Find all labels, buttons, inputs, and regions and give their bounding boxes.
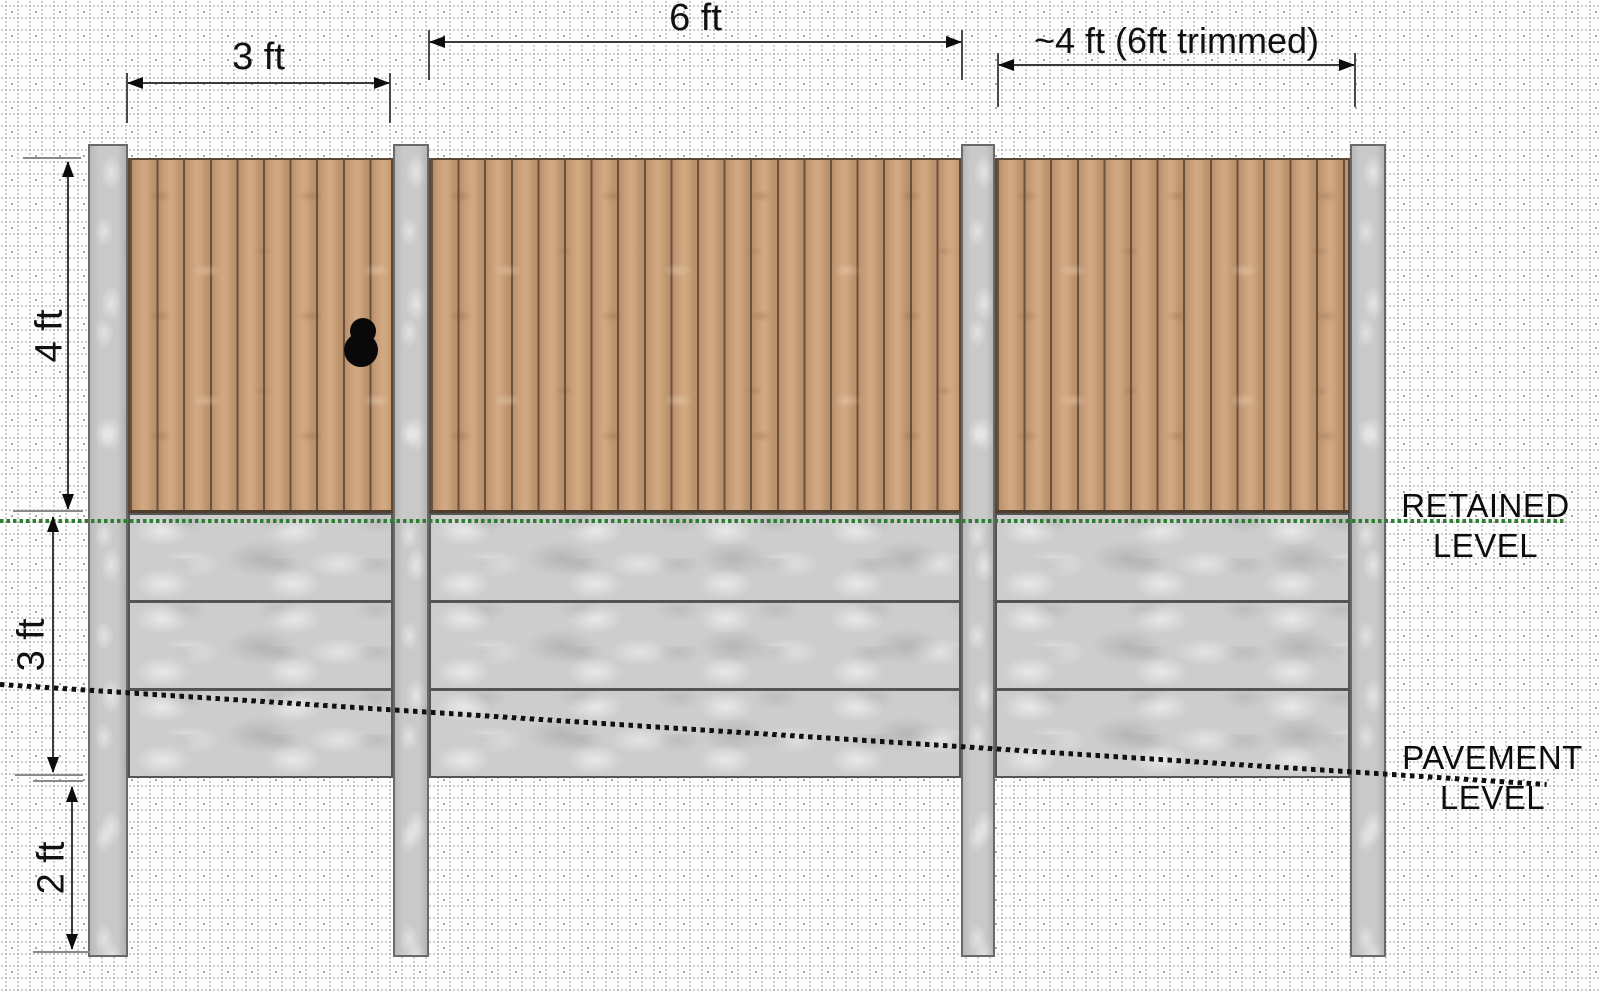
concrete-post <box>393 144 429 957</box>
dimension-line <box>127 82 390 84</box>
concrete-post <box>88 144 128 957</box>
arrow-up-icon <box>47 516 59 532</box>
dimension-label: 3 ft <box>11 618 54 671</box>
arrow-left-icon <box>429 36 445 48</box>
fence-panel <box>995 158 1350 513</box>
pavement-level-label-line1: PAVEMENT <box>1385 738 1600 778</box>
dimension-label: 4 ft <box>29 309 72 362</box>
gravel-board <box>429 689 961 778</box>
gravel-board <box>995 601 1350 690</box>
retained-level-label-line1: RETAINED <box>1378 486 1593 526</box>
extension-line <box>15 774 83 776</box>
knot-hole-mark <box>344 318 378 366</box>
pavement-level-label: PAVEMENT LEVEL <box>1385 738 1600 818</box>
gravel-board <box>995 513 1350 602</box>
retained-level-line <box>0 519 1566 523</box>
extension-line <box>33 780 83 782</box>
gravel-board <box>429 601 961 690</box>
arrow-down-icon <box>62 494 74 510</box>
pavement-level-label-line2: LEVEL <box>1385 778 1600 818</box>
retained-level-label: RETAINED LEVEL <box>1378 486 1593 566</box>
arrow-left-icon <box>998 59 1014 71</box>
arrow-right-icon <box>374 77 390 89</box>
arrow-up-icon <box>62 161 74 177</box>
gravel-board <box>128 601 393 690</box>
gravel-board <box>995 689 1350 778</box>
dimension-label: 6 ft <box>669 0 722 40</box>
gravel-board-stack <box>995 513 1350 778</box>
gravel-board-stack <box>128 513 393 778</box>
dimension-label: 3 ft <box>232 36 285 79</box>
arrow-left-icon <box>127 77 143 89</box>
dimension-label: ~4 ft (6ft trimmed) <box>1034 20 1319 62</box>
gravel-board <box>429 513 961 602</box>
fence-panel <box>429 158 961 513</box>
extension-line <box>23 157 81 159</box>
dimension-line <box>998 64 1355 66</box>
gravel-board <box>128 513 393 602</box>
dimension-label: 2 ft <box>31 842 74 895</box>
arrow-down-icon <box>66 934 78 950</box>
arrow-right-icon <box>946 36 962 48</box>
extension-line <box>33 951 90 953</box>
arrow-right-icon <box>1339 59 1355 71</box>
arrow-up-icon <box>66 786 78 802</box>
concrete-post <box>961 144 995 957</box>
knot-hole-circle <box>344 333 378 367</box>
retained-level-label-line2: LEVEL <box>1378 526 1593 566</box>
dimension-line <box>429 41 962 43</box>
extension-line <box>13 510 83 512</box>
arrow-down-icon <box>47 757 59 773</box>
fence-elevation-diagram: 3 ft 6 ft ~4 ft (6ft trimmed) 4 ft 3 ft … <box>0 0 1600 992</box>
